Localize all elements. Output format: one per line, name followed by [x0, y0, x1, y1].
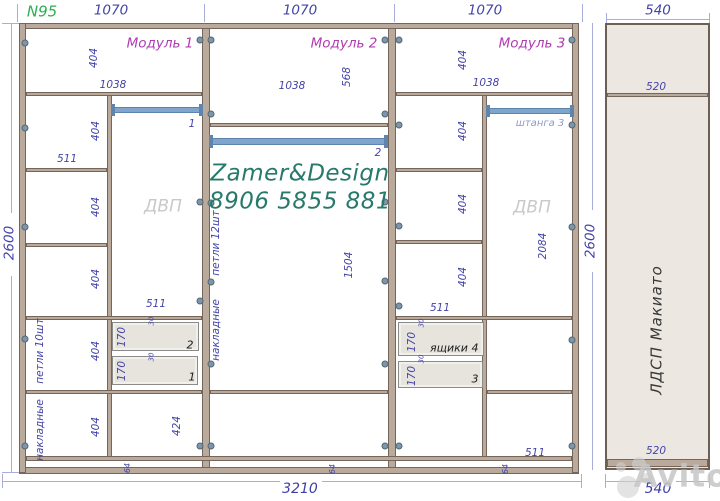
- fastener-dot: [197, 298, 204, 305]
- material-label: ЛДСП Макиато: [650, 265, 665, 395]
- fastener-dot: [22, 443, 29, 450]
- module-3-title: Модуль 3: [499, 37, 566, 51]
- top-dim-tick: [394, 4, 395, 22]
- dim-label: 1038: [473, 78, 500, 89]
- top-dim-side-panel: 540: [645, 4, 671, 18]
- watermark-logo-circle: [616, 462, 626, 472]
- bottom-dim-tick: [605, 474, 606, 488]
- dim-label: 511: [57, 154, 77, 165]
- dim-label: 1038: [279, 81, 306, 92]
- fastener-dot: [197, 37, 204, 44]
- bottom-total-width: 3210: [282, 482, 318, 496]
- fastener-dot: [382, 278, 389, 285]
- bottom-dim-tick: [581, 474, 582, 488]
- fastener-dot: [396, 37, 403, 44]
- module-1-shelf: [26, 243, 107, 247]
- dim-label: 1504: [344, 252, 355, 279]
- fastener-dot: [208, 279, 215, 286]
- hanging-rod-1: [112, 107, 202, 113]
- left-dim-tick: [2, 23, 19, 24]
- top-dim-module-1: 1070: [94, 4, 128, 18]
- module-3-shelf: [487, 390, 572, 394]
- fastener-dot: [396, 303, 403, 310]
- module-2-top-shelf: [210, 123, 388, 127]
- dim-label: 404: [91, 417, 102, 437]
- drawer-3-number: 3: [472, 374, 479, 385]
- right-dim-line: [592, 23, 593, 210]
- left-height-dim: 2600: [3, 226, 17, 260]
- dim-label: 170: [407, 332, 418, 352]
- dim-label: 30: [149, 317, 156, 326]
- fastener-dot: [208, 111, 215, 118]
- top-dim-module-3: 1070: [468, 4, 502, 18]
- rod-3-label: штанга 3: [516, 119, 565, 129]
- bottom-dim-line: [2, 481, 280, 482]
- module-3-vertical-divider: [482, 95, 487, 458]
- dim-label: 170: [117, 361, 128, 381]
- module-2-title: Модуль 2: [311, 37, 378, 51]
- drawer-2-number: 2: [187, 340, 194, 351]
- top-dim-tick: [582, 4, 583, 22]
- dim-label: 404: [91, 269, 102, 289]
- hanging-rod-2: [210, 138, 387, 145]
- side-panel-top-shelf: [607, 93, 708, 97]
- dim-label: 404: [458, 121, 469, 141]
- carcass-left-panel: [19, 23, 26, 473]
- dim-label: 404: [458, 194, 469, 214]
- fastener-dot: [208, 443, 215, 450]
- dim-label: 170: [407, 366, 418, 386]
- left-dim-line: [11, 276, 12, 473]
- watermark-text: Avito: [634, 462, 720, 493]
- dim-label: 511: [146, 299, 166, 310]
- dim-label: 30: [419, 319, 426, 328]
- module-1-shelf: [26, 168, 107, 172]
- fastener-dot: [382, 111, 389, 118]
- drawer-4-number: 4: [472, 343, 479, 354]
- dim-label: 511: [430, 303, 450, 314]
- top-dim-tick: [17, 4, 18, 22]
- right-height-dim: 2600: [584, 224, 598, 258]
- module-1-title: Модуль 1: [127, 37, 194, 51]
- dim-label: 404: [458, 267, 469, 287]
- dim-label: 404: [89, 48, 100, 68]
- module-1-top-shelf: [26, 92, 202, 96]
- side-panel-bottom-depth: 520: [646, 446, 666, 457]
- fastener-dot: [22, 125, 29, 132]
- module-1-shelf: [26, 316, 202, 320]
- fastener-dot: [22, 224, 29, 231]
- dim-label: 170: [117, 327, 128, 347]
- dim-label: 404: [91, 197, 102, 217]
- fastener-dot: [208, 361, 215, 368]
- divider-module-2-3: [388, 28, 396, 468]
- fastener-dot: [569, 224, 576, 231]
- sheet-number: N95: [27, 5, 57, 20]
- brand-phone: 8906 5855 881: [209, 191, 391, 214]
- module-1-hinges-type-label: накладные: [35, 399, 46, 461]
- dim-label: 511: [525, 448, 545, 459]
- dim-label: 404: [458, 50, 469, 70]
- top-dim-line-540: [606, 19, 710, 20]
- fastener-dot: [396, 443, 403, 450]
- dim-label: 30: [149, 353, 156, 362]
- module-3-dvp-label: ДВП: [513, 200, 551, 217]
- top-dim-module-2: 1070: [283, 4, 317, 18]
- module-1-plinth-height: 64: [124, 463, 132, 473]
- brand-name: Zamer&Design: [210, 163, 389, 186]
- bottom-dim-tick: [2, 474, 3, 488]
- module-2-hinges-label: петли 12шт: [211, 210, 222, 275]
- module-3-shelf: [396, 240, 482, 244]
- module-1-dvp-label: ДВП: [144, 199, 182, 216]
- plinth-shelf: [26, 456, 572, 461]
- module-2-shelf: [210, 390, 388, 394]
- fastener-dot: [569, 122, 576, 129]
- dim-label: 30: [419, 355, 426, 364]
- module-1-hinges-label: петли 10шт: [35, 318, 46, 383]
- fastener-dot: [22, 40, 29, 47]
- carcass-bottom-panel: [19, 467, 579, 474]
- drawers-label: ящики: [430, 343, 468, 354]
- right-dim-line: [592, 272, 593, 470]
- module-3-plinth-height: 64: [502, 464, 510, 474]
- module-3-shelf: [396, 168, 482, 172]
- left-dim-tick: [2, 472, 19, 473]
- fastener-dot: [382, 443, 389, 450]
- fastener-dot: [382, 37, 389, 44]
- module-3-top-shelf: [396, 92, 572, 96]
- dim-label: 568: [342, 67, 353, 87]
- fastener-dot: [569, 443, 576, 450]
- fastener-dot: [197, 199, 204, 206]
- side-panel-top-depth: 520: [646, 82, 666, 93]
- dim-label: 2084: [538, 233, 549, 260]
- rod-1-label: 1: [189, 119, 196, 130]
- dim-label: 404: [91, 121, 102, 141]
- dim-label: 404: [91, 341, 102, 361]
- rod-2-label: 2: [375, 148, 382, 159]
- fastener-dot: [22, 336, 29, 343]
- top-dim-tick: [204, 4, 205, 22]
- fastener-dot: [569, 337, 576, 344]
- fastener-dot: [396, 223, 403, 230]
- left-dim-line: [11, 23, 12, 213]
- module-1-shelf: [26, 390, 202, 394]
- dim-label: 1038: [100, 80, 127, 91]
- carcass-top-panel: [19, 23, 579, 29]
- carcass-right-panel: [572, 23, 579, 473]
- module-2-hinges-type-label: накладные: [211, 299, 222, 361]
- hanging-rod-3: [487, 108, 573, 114]
- bottom-dim-line: [322, 481, 581, 482]
- fastener-dot: [197, 443, 204, 450]
- fastener-dot: [382, 361, 389, 368]
- module-2-plinth-height: 64: [329, 464, 337, 474]
- fastener-dot: [569, 37, 576, 44]
- fastener-dot: [208, 37, 215, 44]
- dim-label: 424: [172, 416, 183, 436]
- wardrobe-technical-drawing: N95107010701070540260026003210540Модуль …: [0, 0, 720, 501]
- module-1-vertical-divider: [107, 95, 112, 458]
- fastener-dot: [396, 122, 403, 129]
- drawer-1-number: 1: [189, 372, 196, 383]
